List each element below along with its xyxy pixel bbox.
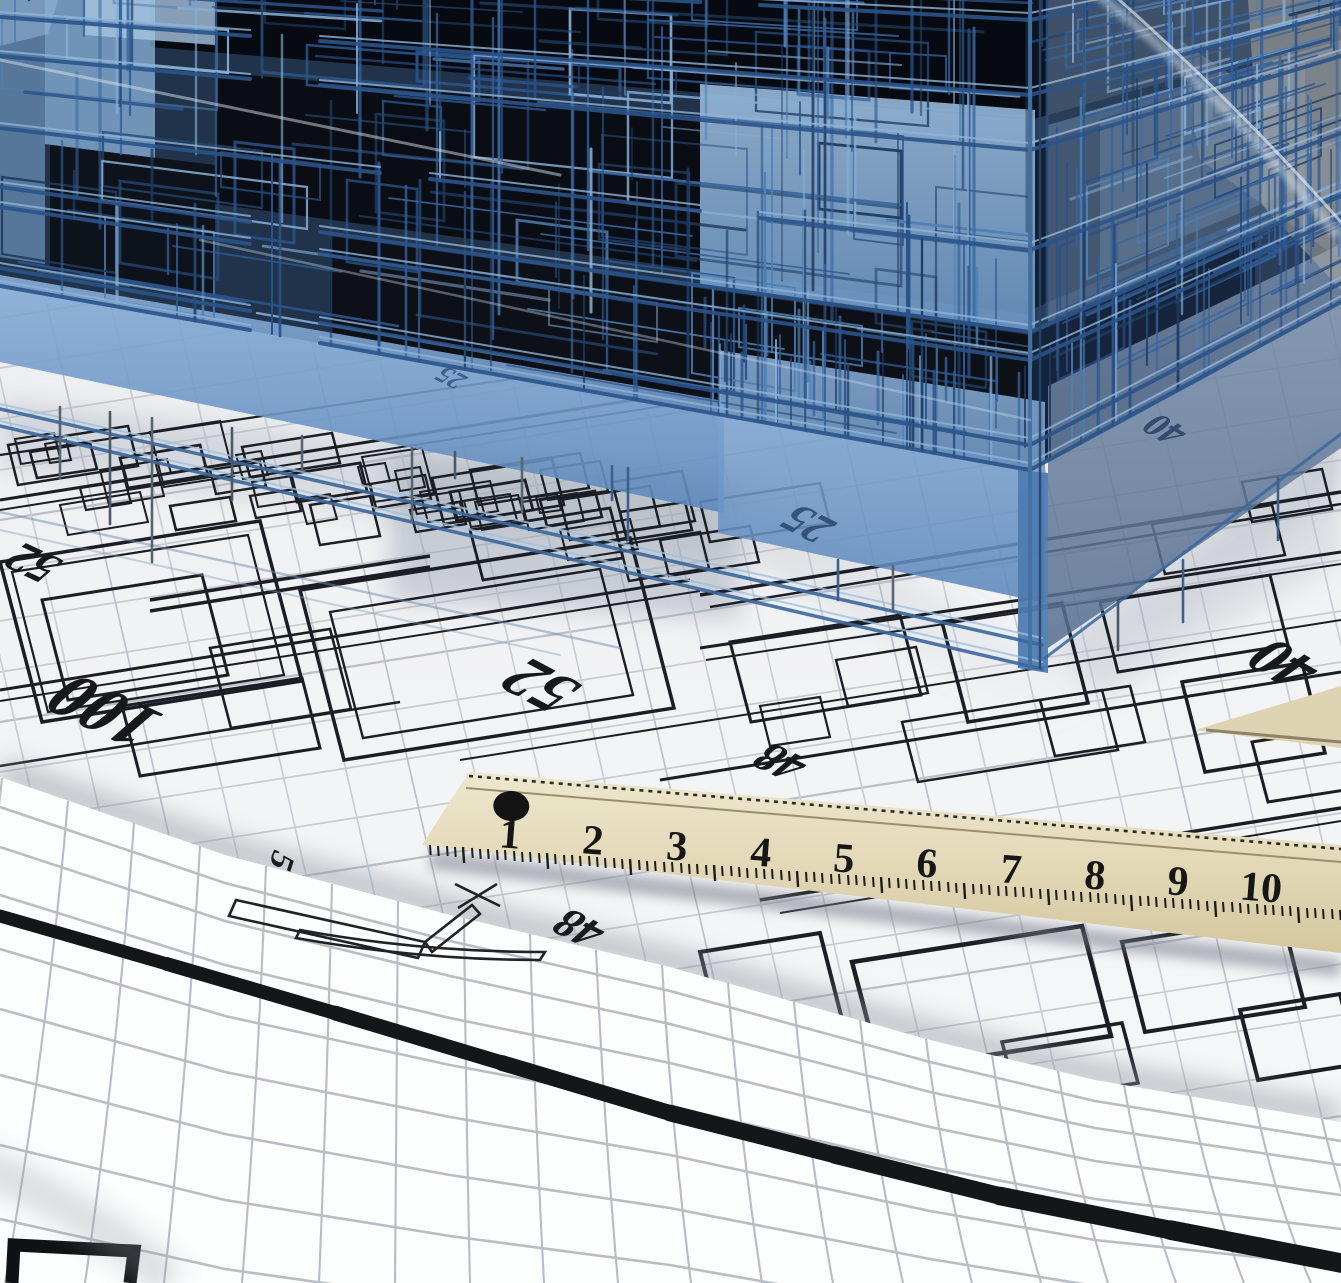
svg-text:4: 4 [749,829,774,877]
svg-text:1: 1 [498,811,523,859]
svg-text:3: 3 [665,823,690,871]
svg-text:8: 8 [1083,852,1108,900]
svg-text:10: 10 [1238,863,1283,912]
svg-text:6: 6 [915,840,940,888]
svg-text:7: 7 [999,846,1024,894]
svg-text:2: 2 [581,817,606,865]
svg-text:9: 9 [1166,858,1191,906]
svg-text:5: 5 [832,835,857,883]
